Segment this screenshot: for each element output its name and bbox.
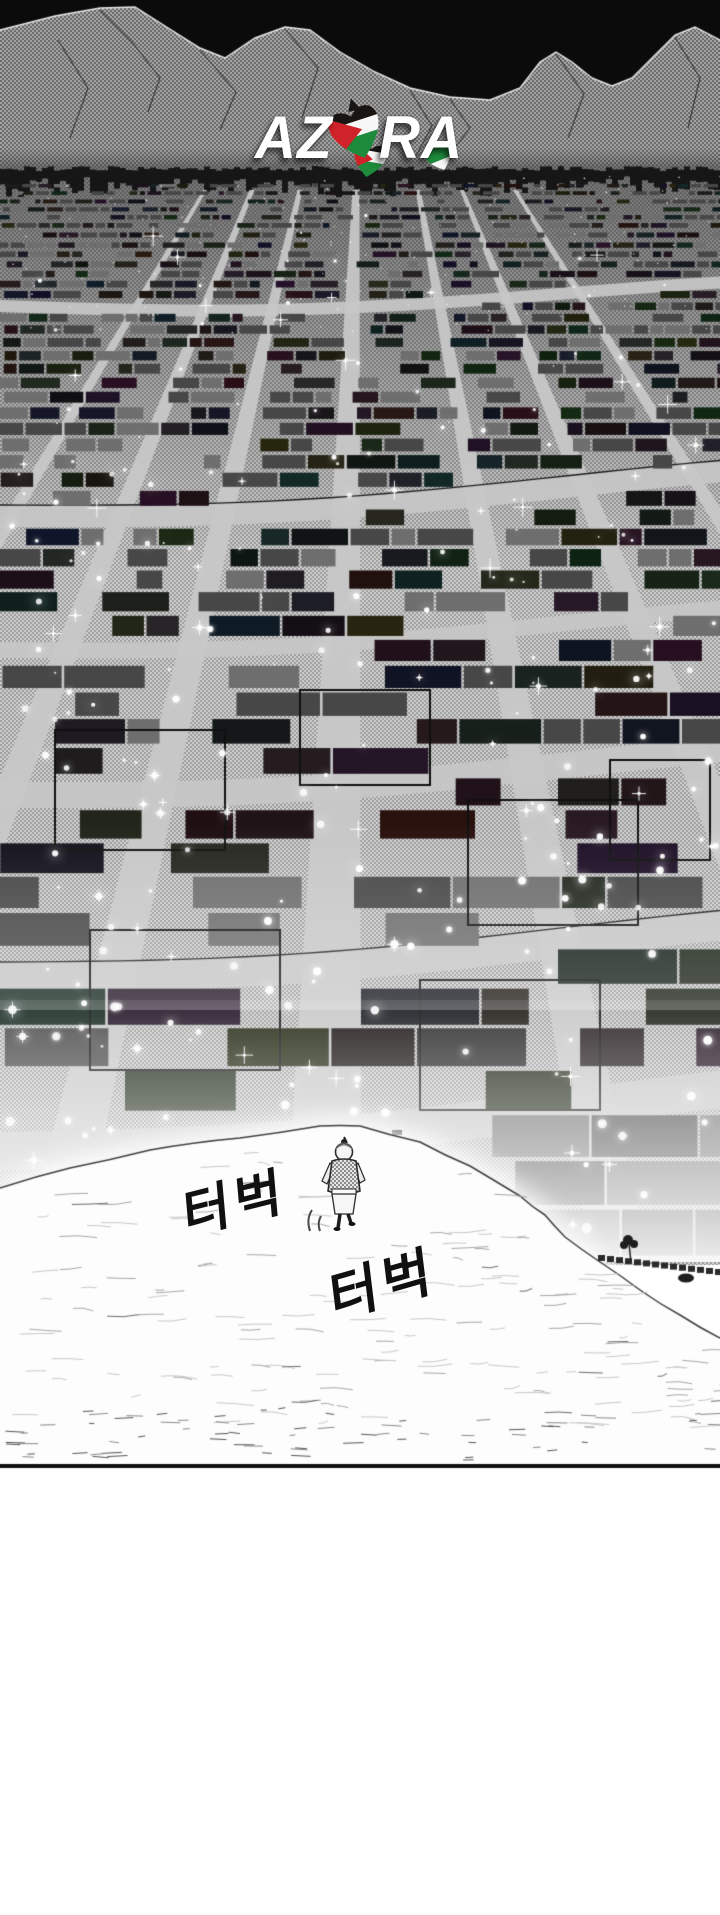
right-leg — [348, 1214, 351, 1223]
comic-panel: AZ RA — [0, 0, 720, 1470]
walking-character — [304, 1134, 384, 1236]
head — [336, 1144, 353, 1161]
logo-text-right: RA — [379, 108, 463, 168]
left-leg — [338, 1214, 340, 1228]
sash — [332, 1189, 356, 1194]
webtoon-page: AZ RA — [0, 0, 720, 1915]
skirt — [332, 1194, 356, 1214]
motion-mark — [319, 1216, 321, 1231]
motion-mark — [308, 1210, 312, 1231]
night-city-illustration — [0, 0, 720, 1470]
logo-text-left: AZ — [255, 108, 333, 168]
azora-logo: AZ RA — [250, 101, 468, 175]
page-bottom-margin — [0, 1470, 720, 1915]
